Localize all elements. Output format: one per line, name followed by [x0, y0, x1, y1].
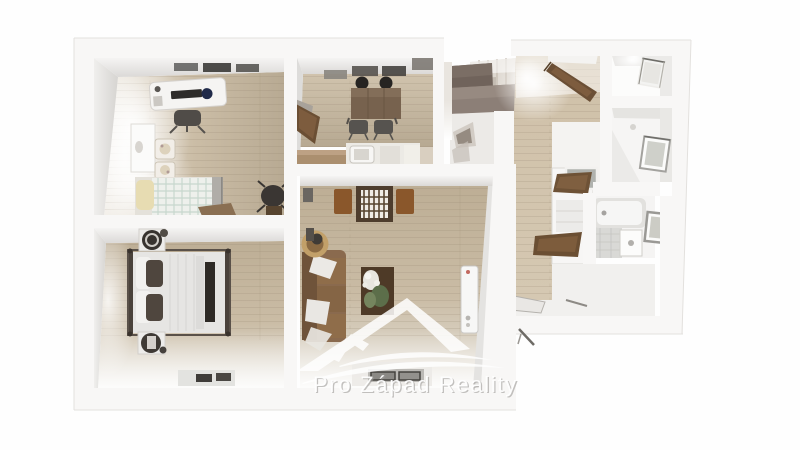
svg-text:Pro Západ Reality: Pro Západ Reality	[313, 372, 518, 397]
